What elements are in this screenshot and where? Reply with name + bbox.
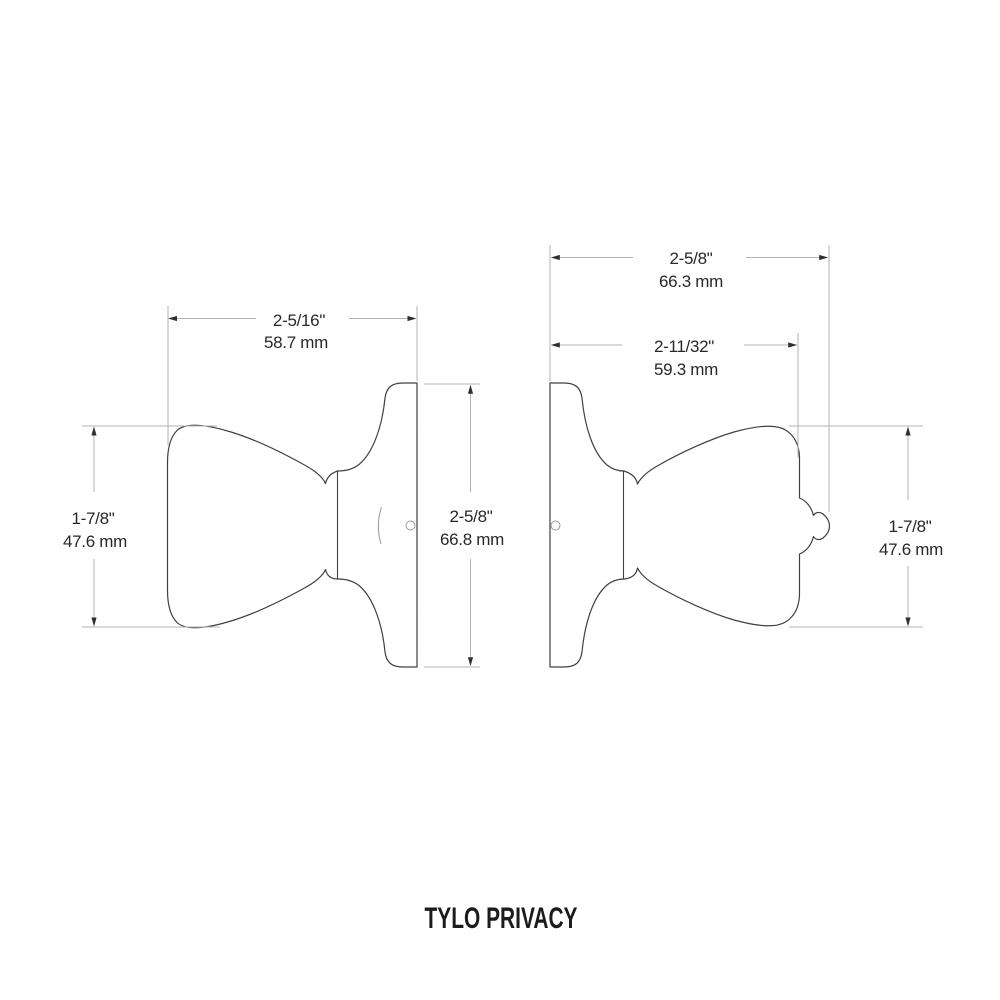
arrowhead-down [91,618,96,627]
right-knob-outline [550,383,830,667]
dim-left-rose-inch: 2-5/8" [450,507,493,526]
dim-right-projection-mm: 59.3 mm [654,360,718,379]
arrowhead-left [551,342,560,347]
arrowhead-left [168,316,177,321]
knob-dimension-drawing: 2-5/16" 58.7 mm 1-7/8" 47.6 mm 2-5/8" 66… [0,0,1000,1000]
arrowhead-right [408,316,417,321]
dim-left-rose-diameter: 2-5/8" 66.8 mm [424,384,504,667]
product-title: TYLO PRIVACY [425,902,578,935]
dim-left-rose-mm: 66.8 mm [440,530,504,549]
arrowhead-up [91,427,96,436]
dim-left-height-mm: 47.6 mm [63,532,127,551]
dim-left-height-inch: 1-7/8" [72,509,115,528]
arrowhead-up [468,385,473,394]
arrowhead-right [819,255,828,260]
dim-right-height-inch: 1-7/8" [889,517,932,536]
arrowhead-down [468,657,473,666]
dim-right-height-mm: 47.6 mm [879,540,943,559]
dim-left-width: 2-5/16" 58.7 mm [168,306,417,445]
dim-right-projection-inch: 2-11/32" [654,337,714,356]
arrowhead-left [551,255,560,260]
dim-left-width-inch: 2-5/16" [273,311,325,330]
arrowhead-up [905,427,910,436]
dim-right-overall-mm: 66.3 mm [659,272,723,291]
arrowhead-down [905,618,910,627]
dim-left-width-mm: 58.7 mm [264,333,328,352]
right-knob-view [550,383,830,667]
arrowhead-right [788,342,797,347]
dimension-drawing-page: 2-5/16" 58.7 mm 1-7/8" 47.6 mm 2-5/8" 66… [0,0,1000,1000]
dim-right-overall-inch: 2-5/8" [670,249,713,268]
